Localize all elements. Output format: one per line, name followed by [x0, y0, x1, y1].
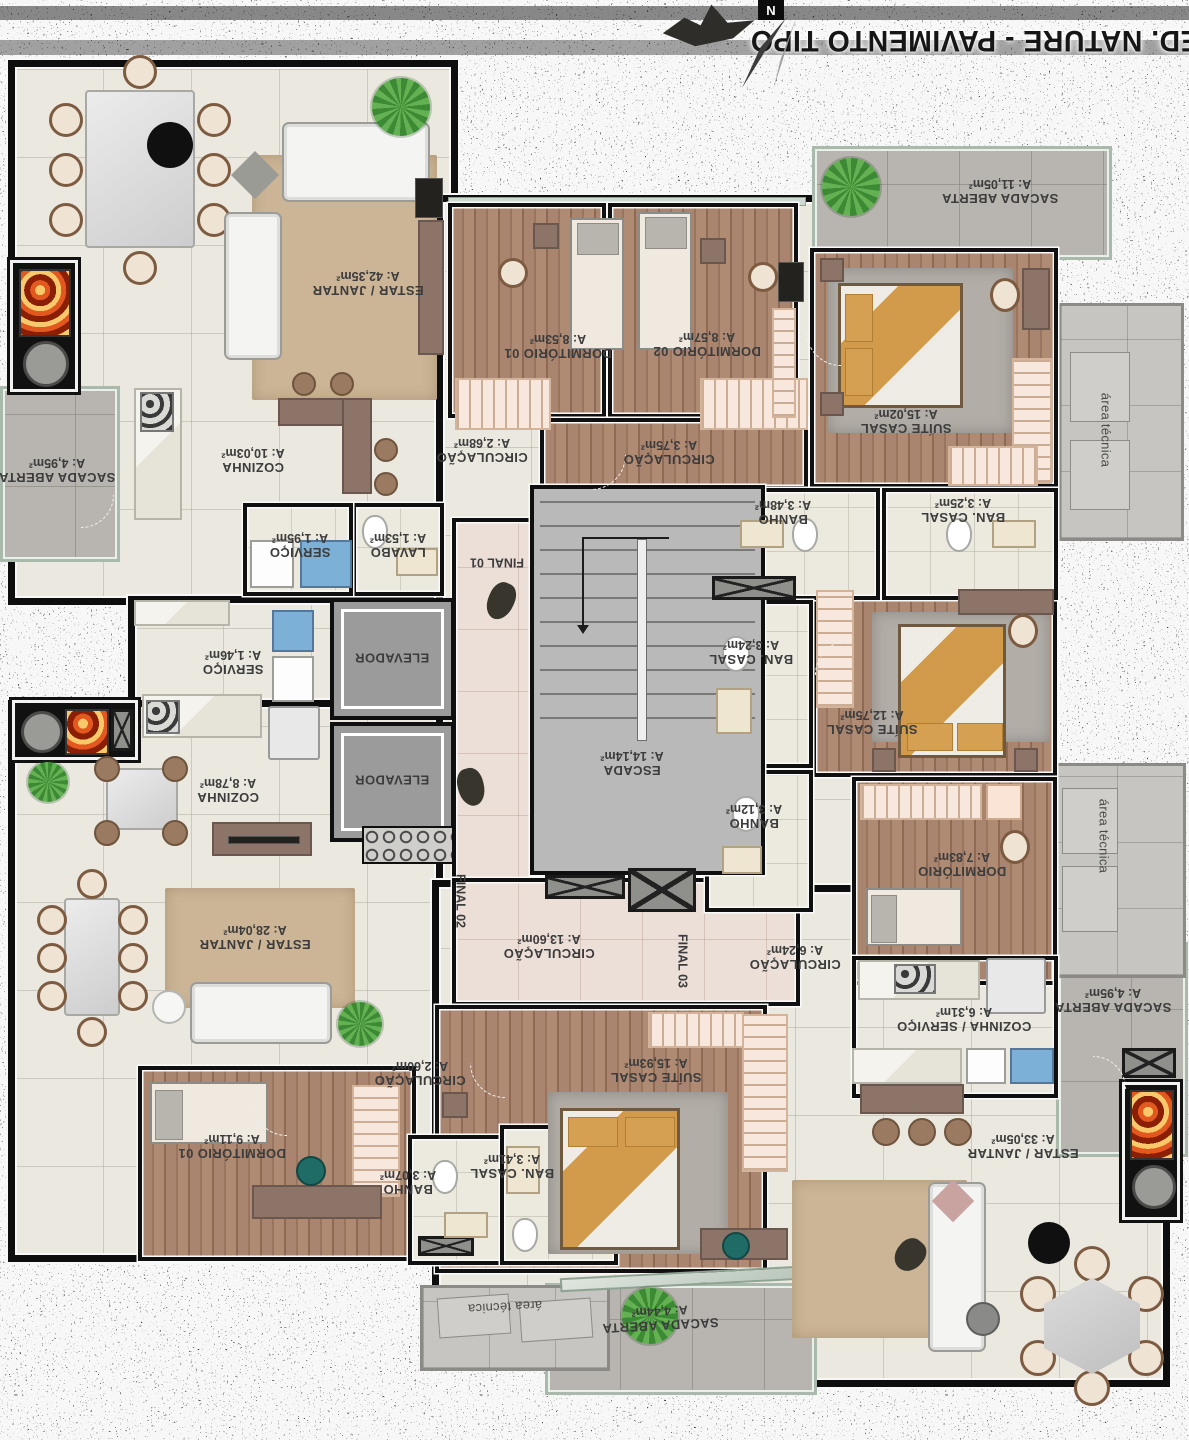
shaft-3 — [628, 868, 696, 912]
dining-chair — [77, 869, 107, 899]
dining-chair — [49, 203, 83, 237]
dining-table-a — [85, 90, 195, 248]
room-label-estar-jantar-a: ESTAR / JANTARA: 42,35m² — [312, 268, 423, 298]
room-label-sacada-1105: SACADA ABERTAA: 11,05m² — [942, 176, 1059, 206]
dining-chair — [197, 103, 231, 137]
shaft-2 — [545, 875, 625, 899]
room-label-dormitorio-853: DORMITÓRIO 01A: 8,53m² — [504, 331, 612, 361]
toilet — [512, 1218, 538, 1252]
final-02-label: FINAL 02 — [453, 874, 468, 928]
plant — [372, 78, 430, 136]
bar-stool — [292, 372, 316, 396]
plant — [822, 158, 880, 216]
desk-chair — [722, 1232, 750, 1260]
island-sink — [852, 1048, 962, 1084]
desk-chair — [498, 258, 528, 288]
desk-chair — [990, 278, 1020, 312]
room-label-suite-1593: SUÍTE CASALA: 15,93m² — [610, 1055, 701, 1085]
elevator-2-label: ELEVADOR — [355, 772, 429, 787]
bar-stool — [872, 1118, 900, 1146]
technical-area-right-label: área técnica — [1096, 799, 1111, 873]
pillow — [845, 348, 873, 396]
fridge-b — [268, 706, 320, 760]
grill-fire — [19, 269, 71, 337]
room-label-sacada-left: SACADA ABERTAA: 4,95m² — [0, 455, 115, 485]
pillow — [625, 1117, 675, 1147]
dining-chair — [49, 103, 83, 137]
bedside-lamp — [872, 748, 896, 772]
bedside-lamp — [533, 223, 559, 249]
plant — [28, 762, 68, 802]
grill-fire — [65, 709, 109, 755]
computer-desk — [778, 262, 804, 302]
sofa-b — [190, 982, 332, 1044]
dresser — [958, 589, 1054, 615]
pouf-round — [152, 990, 186, 1024]
dining-chair — [37, 981, 67, 1011]
laundry-window-d — [1010, 1048, 1054, 1084]
side-table-round — [147, 122, 193, 168]
room-label-lavabo: LAVABOA: 1,53m² — [370, 530, 426, 560]
compass-needle-dark — [742, 18, 786, 88]
tv-bench-b — [212, 822, 312, 856]
dining-chair — [123, 251, 157, 285]
closet-suite-bottom — [742, 1014, 788, 1172]
dining-chair — [118, 943, 148, 973]
bedside-lamp — [820, 392, 844, 416]
room-label-circulacao-624: CIRCULAÇÃOA: 6,24m² — [749, 942, 840, 972]
barbecue-grill-a — [10, 260, 78, 392]
dining-chair — [49, 153, 83, 187]
sink-vanity — [722, 846, 762, 874]
floor-plan: ESTAR / JANTARA: 42,35m² SACADA ABERTAA:… — [0, 0, 1189, 1440]
shirt-shelf — [986, 784, 1022, 820]
room-label-banho-312: BANHOA: 3,12m² — [726, 801, 782, 831]
room-label-bancasal-324: BAN. CASALA: 3,24m² — [709, 637, 793, 667]
closet-strip — [772, 308, 796, 418]
pillow — [645, 217, 687, 249]
washer-2 — [272, 656, 314, 702]
sink-vanity — [444, 1212, 488, 1238]
stove-b — [146, 700, 180, 734]
bar-stool — [908, 1118, 936, 1146]
bedside-lamp — [442, 1092, 468, 1118]
grill-sink — [21, 711, 63, 753]
side-table-round — [1028, 1222, 1070, 1264]
final-03-label: FINAL 03 — [675, 934, 690, 988]
dining-table-b — [64, 898, 120, 1016]
bar-stool — [374, 438, 398, 462]
dining-chair — [77, 1017, 107, 1047]
bedside-lamp — [1014, 748, 1038, 772]
grill-shaft — [111, 709, 133, 751]
stove-d — [894, 964, 936, 994]
room-label-sacada-bottom: SACADA ABERTAA: 4,44m² — [601, 1300, 719, 1336]
room-label-sacada-right: SACADA ABERTAA: 4,95m² — [1055, 985, 1172, 1015]
room-label-bancasal-325: BAN. CASALA: 3,25m² — [921, 495, 1005, 525]
room-label-cozinha-servico: COZINHA / SERVIÇOA: 6,31m² — [897, 1004, 1032, 1034]
grill-sink — [1132, 1165, 1176, 1209]
floor-lamp — [966, 1302, 1000, 1336]
room-label-servico-195: SERVIÇOA: 1,95m² — [269, 530, 330, 560]
equipment-box — [1062, 866, 1118, 932]
room-label-dormitorio-857: DORMITÓRIO 02A: 8,57m² — [653, 329, 761, 359]
sofa-a-side — [224, 212, 282, 360]
bar-stool — [330, 372, 354, 396]
tv — [228, 836, 300, 844]
bedside-lamp — [820, 258, 844, 282]
final-01-label: FINAL 01 — [470, 555, 524, 570]
plant — [338, 1002, 382, 1046]
double-bed-suite-top — [838, 283, 963, 408]
bottle-rack — [362, 826, 454, 864]
room-label-dormitorio-783: DORMITÓRIOA: 7,83m² — [918, 849, 1007, 879]
double-bed-suite-mid — [898, 624, 1006, 758]
island-bar — [860, 1084, 964, 1114]
room-label-circulacao-268: CIRCULAÇÃOA: 2,68m² — [436, 435, 527, 465]
barbecue-grill-b — [12, 700, 138, 760]
shaft-1 — [712, 576, 796, 600]
bar-table-a-leg — [342, 398, 372, 494]
pillow — [871, 895, 897, 943]
north-compass-icon: N — [738, 0, 802, 92]
shaft-4 — [418, 1236, 474, 1256]
room-label-suite-1502: SUÍTE CASALA: 15,02m² — [860, 406, 951, 436]
dining-chair — [1074, 1370, 1110, 1406]
pillow — [568, 1117, 618, 1147]
dining-chair — [37, 905, 67, 935]
washer-d — [966, 1048, 1006, 1084]
room-label-suite-1275: SUÍTE CASALA: 12,75m² — [826, 707, 917, 737]
stove-a — [140, 392, 174, 432]
bedside-lamp — [700, 238, 726, 264]
dining-chair — [118, 905, 148, 935]
room-label-bancasal-341: BAN. CASALA: 3,41m² — [470, 1151, 554, 1181]
kitchen-chair — [162, 756, 188, 782]
laundry-window-2 — [272, 610, 314, 652]
stair-arrow — [577, 625, 589, 634]
shaft-5 — [1122, 1048, 1176, 1078]
pillow — [957, 723, 1003, 751]
room-label-servico-146: SERVIÇOA: 1,46m² — [202, 647, 263, 677]
room-label-banho-348: BANHOA: 3,48m² — [755, 497, 811, 527]
tv-panel — [415, 178, 443, 218]
dining-chair — [118, 981, 148, 1011]
stair-path — [582, 537, 669, 629]
desk-chair — [1008, 614, 1038, 648]
room-label-estar-jantar-e: ESTAR / JANTARA: 33,05m² — [967, 1131, 1078, 1161]
grill-fire — [1130, 1090, 1174, 1160]
closet-dorm-right — [860, 784, 982, 820]
closet-dorm-01 — [455, 378, 551, 430]
elevator-1-label: ELEVADOR — [355, 650, 429, 665]
desk-chair — [296, 1156, 326, 1186]
dining-chair — [37, 943, 67, 973]
desk-chair — [748, 262, 778, 292]
room-label-banho-307: BANHOA: 3,07m² — [380, 1167, 436, 1197]
dining-chair — [1074, 1246, 1110, 1282]
wardrobe — [948, 446, 1038, 486]
room-label-dormitorio-911: DORMITÓRIO 01A: 9,11m² — [178, 1131, 286, 1161]
laundry-counter — [134, 600, 230, 626]
room-label-circulacao-1360: CIRCULAÇÃOA: 13,60m² — [503, 931, 594, 961]
north-letter: N — [758, 0, 784, 20]
room-label-circulacao-375: CIRCULAÇÃOA: 3,75m² — [623, 437, 714, 467]
pillow — [845, 294, 873, 342]
single-bed-right — [866, 888, 962, 946]
plan-title: ED. NATURE - PAVIMENTO TIPO — [750, 23, 1189, 57]
shirt-shelf-suite — [648, 1012, 744, 1048]
room-label-estar-jantar-b: ESTAR / JANTARA: 28,04m² — [199, 922, 310, 952]
technical-area-top-label: área técnica — [1098, 393, 1113, 467]
room-label-escada: ESCADAA: 14,14m² — [600, 748, 663, 778]
desk-b — [252, 1185, 382, 1219]
desk — [1022, 268, 1050, 330]
grill-sink — [23, 341, 69, 387]
dining-chair — [123, 55, 157, 89]
kitchen-chair — [94, 756, 120, 782]
hall-final-01-floor — [452, 518, 540, 882]
room-label-cozinha-a: COZINHAA: 10,03m² — [221, 445, 284, 475]
sink-vanity — [716, 688, 752, 734]
kitchen-chair — [94, 820, 120, 846]
dining-chair — [197, 153, 231, 187]
pillow — [577, 223, 619, 255]
room-label-cozinha-b: COZINHAA: 8,78m² — [197, 775, 259, 805]
bar-stool — [374, 472, 398, 496]
barbecue-grill-e — [1122, 1082, 1180, 1220]
kitchen-chair — [162, 820, 188, 846]
double-bed-suite-bottom — [560, 1108, 680, 1250]
room-label-circulacao-260: CIRCULAÇÃOA: 2,60m² — [374, 1058, 465, 1088]
